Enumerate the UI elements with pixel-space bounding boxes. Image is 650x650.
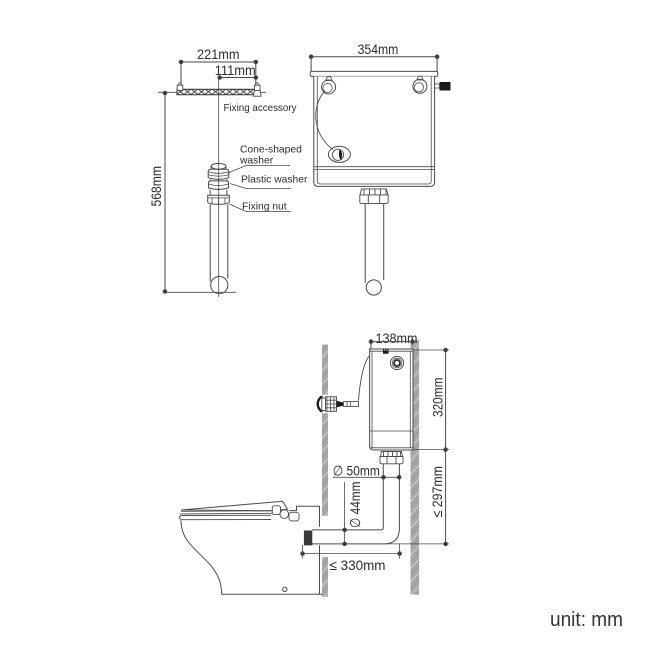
svg-text:221mm: 221mm <box>197 46 240 62</box>
svg-text:Fixing nut: Fixing nut <box>242 202 287 213</box>
svg-text:138mm: 138mm <box>376 330 418 346</box>
svg-text:washer: washer <box>239 156 274 167</box>
svg-text:Plastic washer: Plastic washer <box>241 175 308 186</box>
svg-text:∅ 50mm: ∅ 50mm <box>333 462 380 478</box>
svg-text:354mm: 354mm <box>358 41 399 57</box>
svg-text:≤ 330mm: ≤ 330mm <box>330 557 386 573</box>
svg-text:∅ 44mm: ∅ 44mm <box>347 482 363 529</box>
svg-text:unit: mm: unit: mm <box>550 608 623 631</box>
svg-text:≤ 297mm: ≤ 297mm <box>429 466 445 518</box>
svg-text:Fixing accessory: Fixing accessory <box>224 103 298 114</box>
svg-text:Cone-shaped: Cone-shaped <box>240 145 302 156</box>
svg-text:320mm: 320mm <box>430 378 446 418</box>
svg-text:568mm: 568mm <box>148 166 164 207</box>
